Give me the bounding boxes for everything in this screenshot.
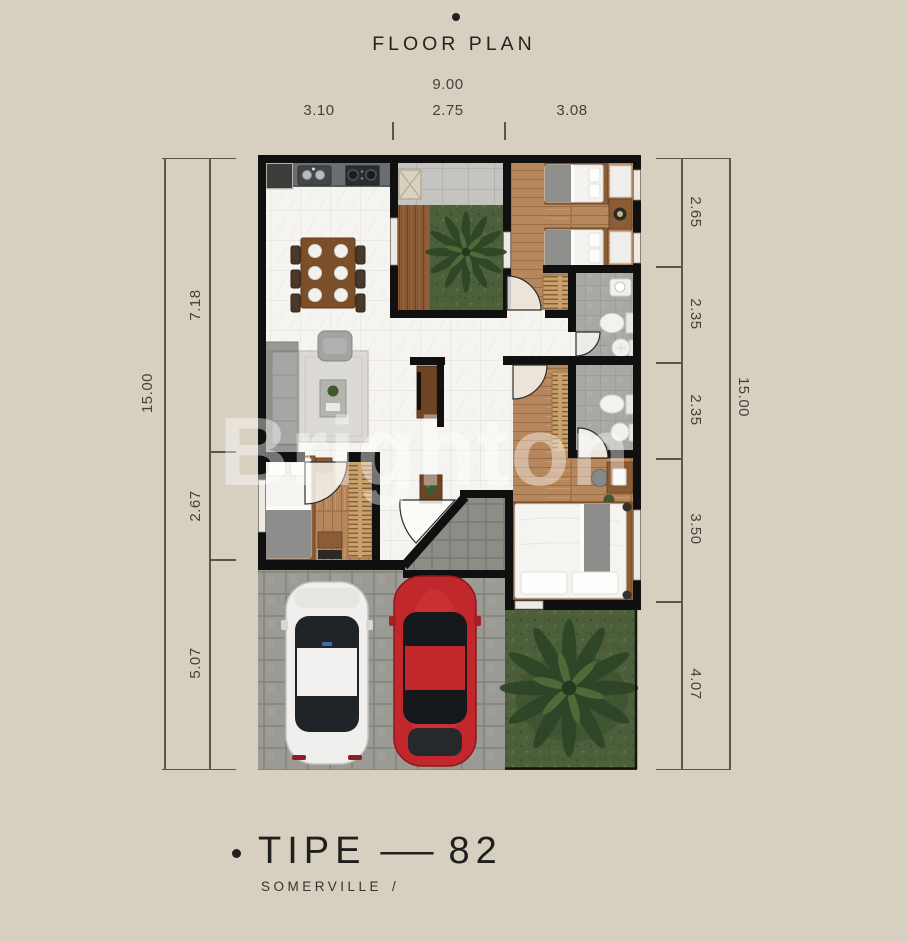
wall-bedroom3-front (258, 560, 405, 570)
dim-top-seg-3: 3.08 (537, 102, 607, 122)
dim-left-tick-mid1 (209, 451, 236, 453)
dining-chair (291, 270, 300, 288)
tv (417, 372, 421, 410)
dining-chair (356, 246, 365, 264)
washing-machine (399, 170, 421, 199)
stove (346, 166, 379, 185)
dim-right-tick-1 (656, 266, 682, 268)
coffee-table (320, 380, 346, 417)
window-bedroom3 (259, 480, 266, 532)
side-table-plant (420, 475, 442, 503)
mirror (281, 620, 288, 630)
kitchen-sink (298, 166, 331, 185)
dim-right-tick-2 (656, 362, 682, 364)
dim-left-outer-line (164, 158, 166, 770)
tv-console (417, 366, 437, 418)
dim-top-total: 9.00 (413, 76, 483, 96)
dim-right-inner-line (681, 158, 683, 770)
window-courtyard-left (391, 218, 398, 265)
series-subtitle: SOMERVILLE / (261, 879, 399, 894)
dim-right-seg-4: 3.50 (684, 494, 704, 564)
plate (335, 289, 348, 302)
wall-bath2-left (568, 365, 576, 450)
dim-right-tick-top (656, 158, 731, 160)
pillow (521, 572, 567, 594)
wardrobe (348, 458, 372, 558)
dim-left-seg-3: 5.07 (187, 628, 207, 698)
type-dash: — (381, 830, 434, 873)
wall-master-left (505, 490, 513, 600)
dining-chair (291, 294, 300, 312)
floor-plan-poster: { "header": { "title": "FLOOR PLAN" }, "… (0, 0, 908, 941)
dim-right-seg-1: 2.65 (684, 177, 704, 247)
laptop (613, 469, 626, 485)
car-red (389, 576, 481, 766)
single-bed-b (545, 228, 608, 269)
dim-right-seg-2: 2.35 (684, 279, 704, 349)
roof (297, 648, 357, 696)
dim-left-tick-mid2 (209, 559, 236, 561)
sink (610, 279, 631, 296)
media-console (318, 550, 342, 559)
wall-courtyard-bottom (390, 310, 507, 318)
footer-bullet-dot (232, 849, 241, 858)
wall-bedroom3-right (372, 452, 380, 570)
window-master-right (634, 510, 641, 580)
bedside-lamp (623, 503, 632, 512)
mirror (366, 620, 373, 630)
window-bedroom1-b (634, 233, 641, 263)
dim-top-seg-1: 3.10 (284, 102, 354, 122)
wall-top (258, 155, 641, 163)
courtyard-deck (398, 205, 430, 310)
dim-top-tick-1 (392, 122, 394, 140)
page-title: FLOOR PLAN (0, 33, 908, 56)
dim-right-total: 15.00 (732, 362, 752, 432)
toilet-tank (626, 395, 634, 414)
dim-right-outer-line (729, 158, 731, 770)
wall-stub-bedroom1 (545, 310, 568, 318)
toilet (600, 395, 624, 413)
dim-right-tick-bottom (656, 769, 731, 771)
plate (309, 267, 322, 280)
title-bullet-dot (452, 13, 460, 21)
dining-chair (291, 246, 300, 264)
window-bedroom1-a (634, 170, 641, 200)
car-white (281, 582, 373, 764)
floor-plan-drawing (250, 148, 650, 778)
type-value: 82 (448, 830, 502, 873)
plate (309, 245, 322, 258)
sofa (264, 342, 298, 454)
single-bed-a (545, 163, 608, 204)
side-bench (610, 166, 631, 197)
side-bench (610, 232, 631, 263)
dining-set (291, 238, 365, 312)
dim-left-tick-top (162, 158, 236, 160)
wall-tv-vertical (437, 357, 444, 427)
dining-chair (356, 294, 365, 312)
armchair (318, 331, 352, 361)
toilet (600, 313, 634, 333)
dining-chair (356, 270, 365, 288)
dim-left-tick-bottom (162, 769, 236, 771)
wall-corridor-bottom (503, 356, 641, 365)
bedside-lamp (623, 591, 632, 600)
dim-left-seg-2: 2.67 (187, 471, 207, 541)
nightstand-lamp (609, 199, 632, 229)
sink (611, 423, 629, 441)
plate (309, 289, 322, 302)
plate (335, 267, 348, 280)
series-slash: / (392, 879, 399, 894)
dim-top-tick-2 (504, 122, 506, 140)
dim-right-seg-5: 4.07 (684, 649, 704, 719)
wall-entry-top (460, 490, 513, 498)
dim-right-tick-3 (656, 458, 682, 460)
type-label: TIPE (258, 830, 366, 873)
roof (405, 646, 465, 690)
master-bed (511, 502, 632, 602)
dim-right-seg-3: 2.35 (684, 375, 704, 445)
plate (335, 245, 348, 258)
dim-top-seg-2: 2.75 (413, 102, 483, 122)
dim-left-total: 15.00 (139, 358, 159, 428)
window-master-bottom (515, 601, 543, 609)
dim-left-seg-1: 7.18 (187, 270, 207, 340)
bench (318, 532, 342, 548)
wall-bath1-left (568, 265, 576, 332)
pillow (572, 572, 618, 594)
dim-left-inner-line (209, 158, 211, 770)
wardrobe (543, 275, 570, 309)
wall-bedroom1-bath1 (543, 265, 641, 273)
wall-bedroom3-top-a (266, 452, 305, 462)
mirror (389, 616, 396, 626)
mirror (474, 616, 481, 626)
wall-bath2-bottom-a (568, 450, 578, 458)
fridge (266, 163, 293, 189)
pedestal-sink (612, 339, 634, 357)
dim-right-tick-4 (656, 601, 682, 603)
series-name: SOMERVILLE (261, 879, 382, 894)
wall-bath2-bottom-b (608, 450, 641, 458)
type-title: TIPE — 82 (258, 830, 503, 873)
